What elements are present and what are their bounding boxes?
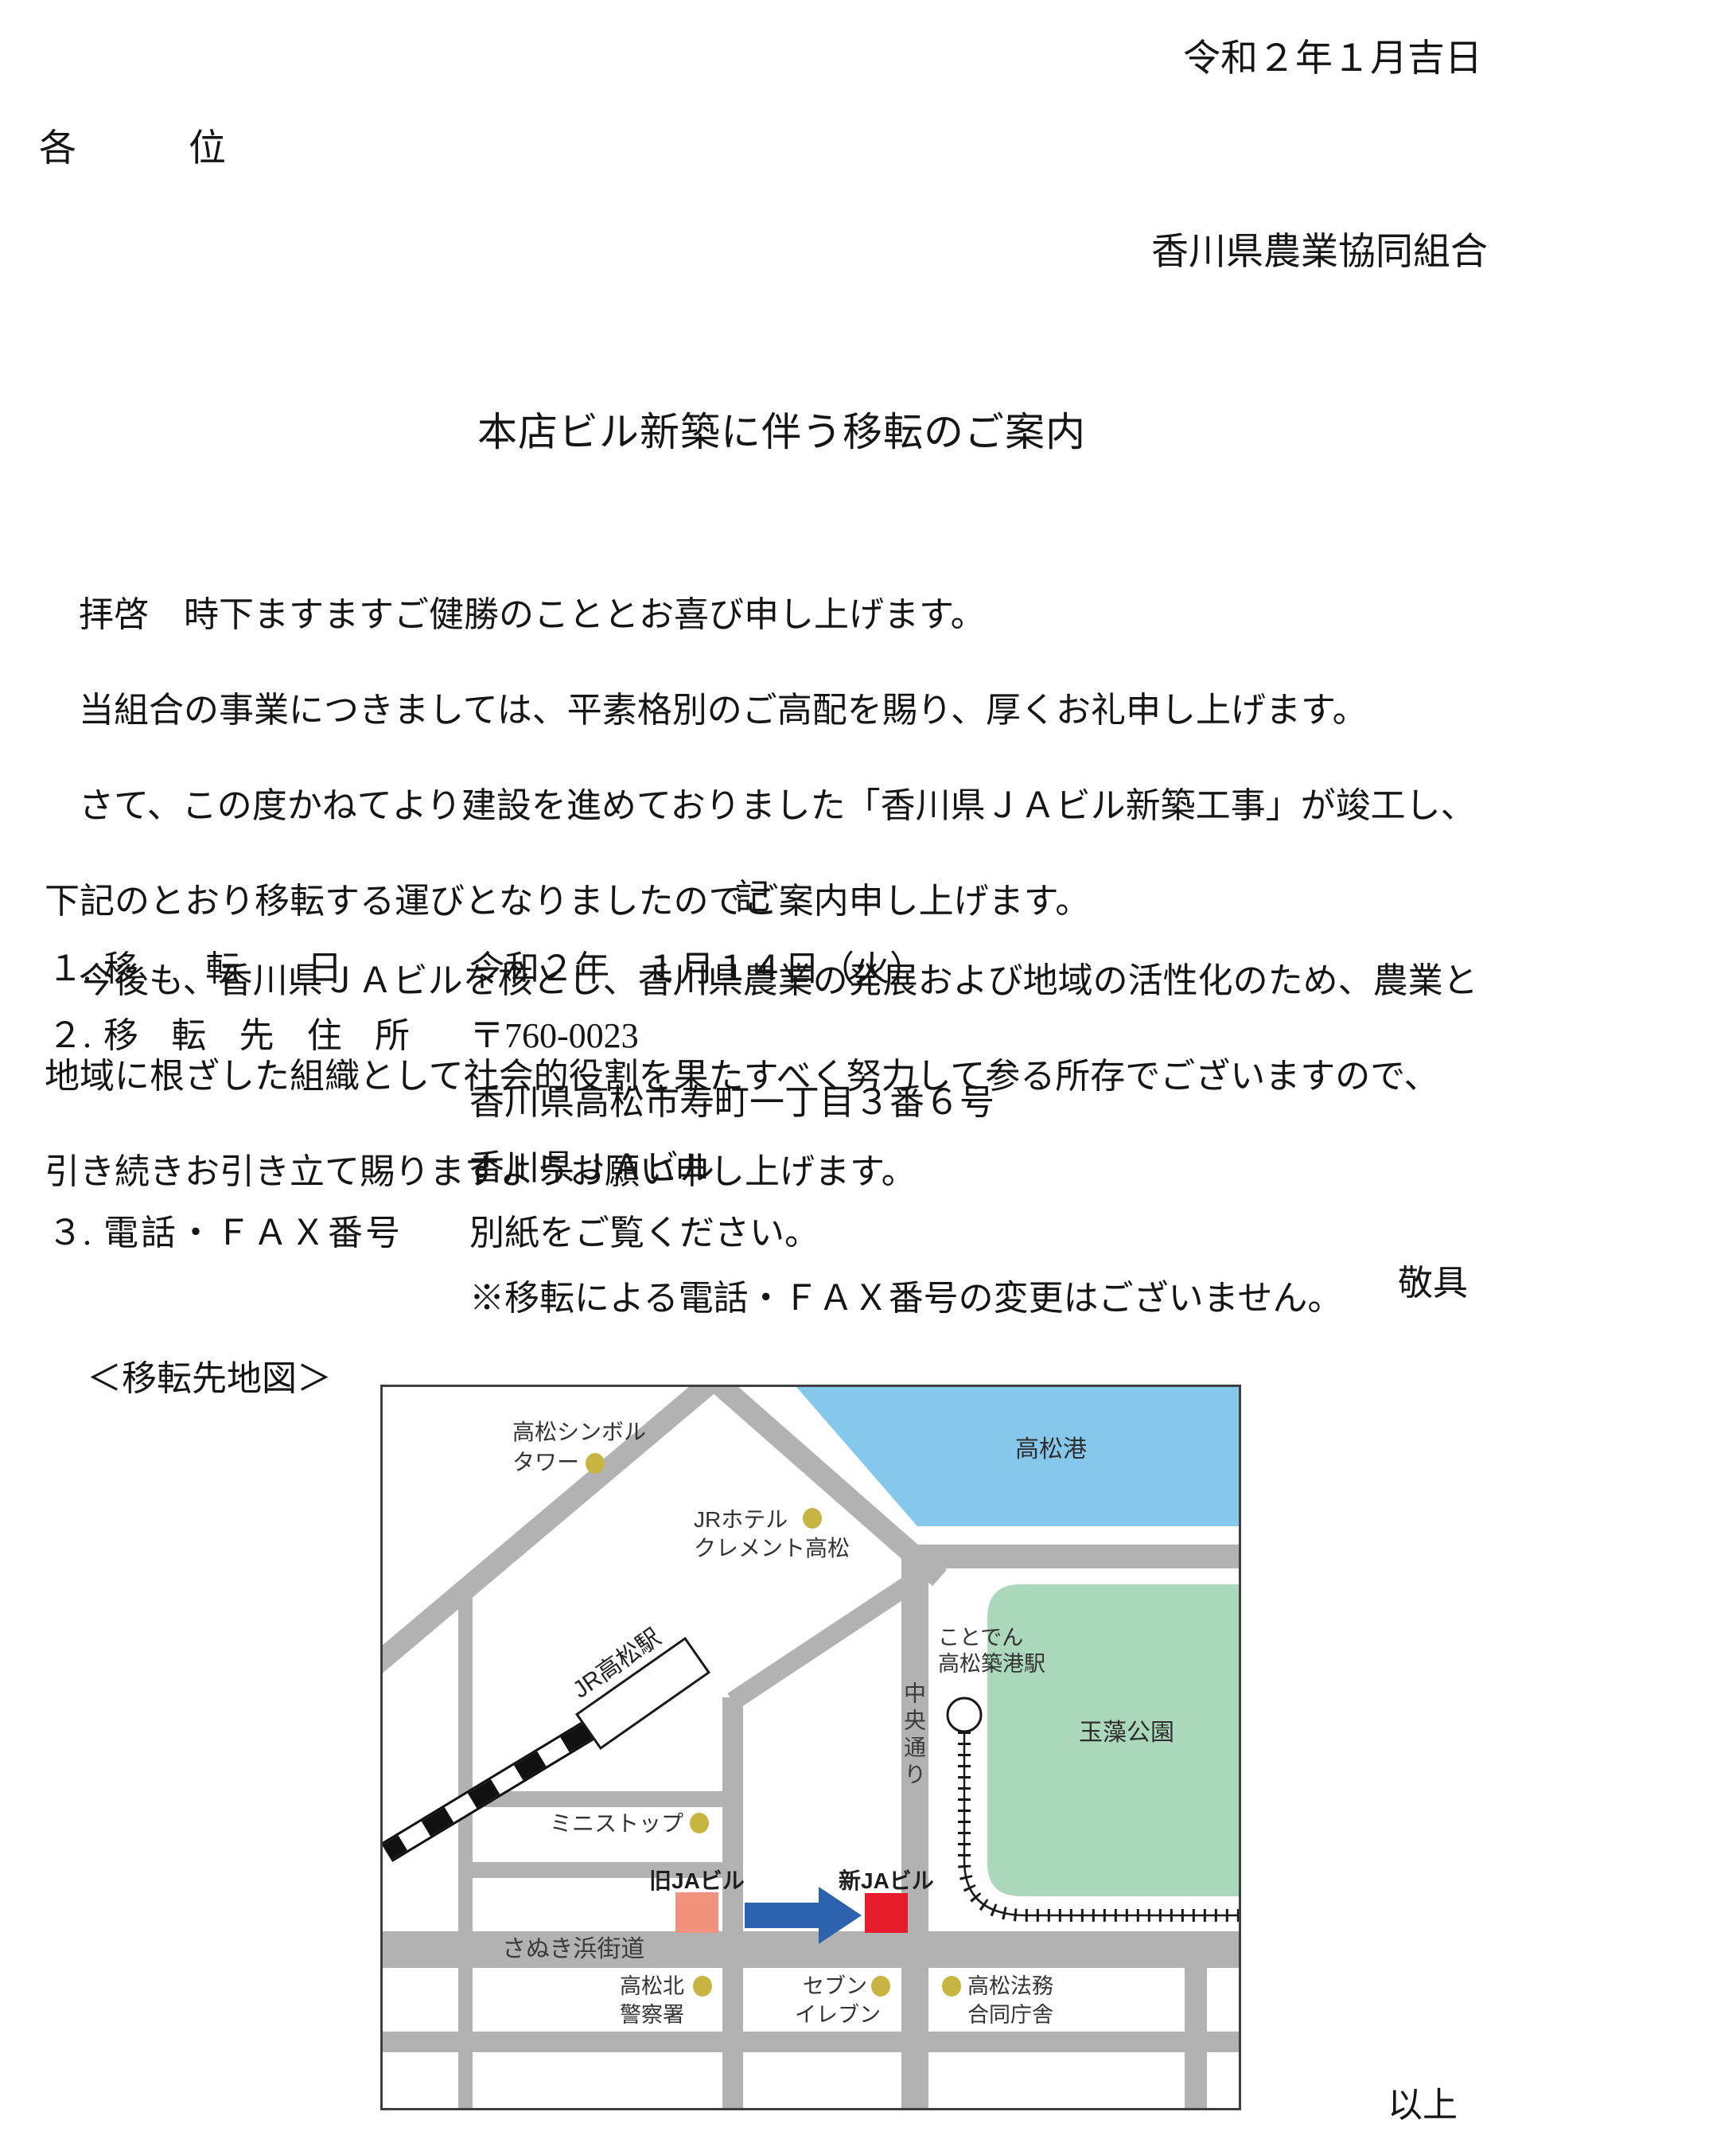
park-label: 玉藻公園: [1079, 1720, 1174, 1747]
item2-label: 移転先住所: [103, 1014, 410, 1058]
item3-number: ３.: [48, 1211, 91, 1255]
letter-title: 本店ビル新築に伴う移転のご案内: [477, 407, 1086, 458]
paragraph-announce-1: さて、この度かねてより建設を進めておりました「香川県ＪＡビル新築工事」が竣工し、: [79, 784, 1476, 828]
police-dot: [693, 1976, 712, 1997]
record-heading: 記: [735, 875, 770, 919]
item1-label: 移転日: [103, 947, 342, 991]
paragraph-thanks: 当組合の事業につきましては、平素格別のご高配を賜り、厚くお礼申し上げます。: [79, 688, 1368, 732]
map-canvas: JR高松駅: [383, 1387, 1239, 2108]
end-mark: 以上: [1388, 2083, 1458, 2127]
ministop-label: ミニストップ: [550, 1810, 683, 1837]
item2-postal-code: 〒760-0023: [469, 1014, 639, 1058]
symbol-tower-label-1: 高松シンボル: [512, 1419, 646, 1446]
addressee: 各 位: [39, 126, 226, 173]
item2-number: ２.: [48, 1014, 91, 1058]
chuo-dori-label: 中央通り: [900, 1681, 927, 1790]
houmu-label-1: 高松法務: [967, 1973, 1053, 2000]
police-label-1: 高松北: [620, 1973, 684, 2000]
houmu-dot: [942, 1976, 961, 1997]
hotel-label-1: JRホテル: [694, 1506, 788, 1533]
hotel-label-2: クレメント高松: [694, 1535, 850, 1562]
kotoden-label-2: 高松築港駅: [938, 1650, 1045, 1677]
item2-building: 香川県ＪＡビル: [469, 1146, 714, 1190]
houmu-label-2: 合同庁舎: [967, 2001, 1053, 2028]
symbol-tower-label-2: タワー: [512, 1449, 579, 1476]
closing-word: 敬具: [1398, 1261, 1468, 1305]
item2-address: 香川県高松市寿町一丁目３番６号: [469, 1081, 995, 1124]
item3-note: ※移転による電話・ＦＡＸ番号の変更はございません。: [469, 1276, 1342, 1320]
kotoden-station-circle: [948, 1698, 981, 1732]
symbol-tower-dot: [586, 1453, 605, 1474]
item1-number: １.: [48, 947, 91, 991]
kotoden-label-1: ことでん: [938, 1624, 1023, 1651]
seven-label-2: イレブン: [795, 2001, 881, 2028]
map-caption: ＜移転先地図＞: [87, 1357, 332, 1401]
new-ja-label: 新JAビル: [839, 1868, 934, 1895]
new-ja-building: [865, 1893, 908, 1933]
sanuki-kaido-label: さぬき浜街道: [502, 1936, 644, 1963]
sender-name: 香川県農業協同組合: [1151, 229, 1488, 276]
date-line: 令和２年１月吉日: [1183, 36, 1482, 83]
police-label-2: 警察署: [620, 2001, 684, 2028]
old-ja-building: [675, 1892, 718, 1933]
item1-value: 令和２年 １月１４日（火）: [469, 947, 924, 991]
paragraph-greeting: 拝啓 時下ますますご健勝のこととお喜び申し上げます。: [79, 593, 986, 637]
location-map: JR高松駅 高松港 高松シンボル タワー JRホテル クレメント高松 ことでん …: [380, 1385, 1241, 2110]
old-ja-label: 旧JAビル: [649, 1868, 745, 1895]
letter-page: 令和２年１月吉日 各 位 香川県農業協同組合 本店ビル新築に伴う移転のご案内 拝…: [0, 0, 1736, 2135]
ministop-dot: [690, 1813, 709, 1833]
item3-label: 電話・ＦＡＸ番号: [103, 1211, 403, 1255]
hotel-dot: [803, 1508, 822, 1529]
harbor-label: 高松港: [1015, 1436, 1087, 1463]
seven-label-1: セブン: [803, 1973, 867, 2000]
paragraph-announce-2: 下記のとおり移転する運びとなりましたのでご案内申し上げます。: [45, 879, 1090, 923]
item3-value: 別紙をご覧ください。: [469, 1211, 819, 1255]
seven-dot: [871, 1976, 890, 1997]
